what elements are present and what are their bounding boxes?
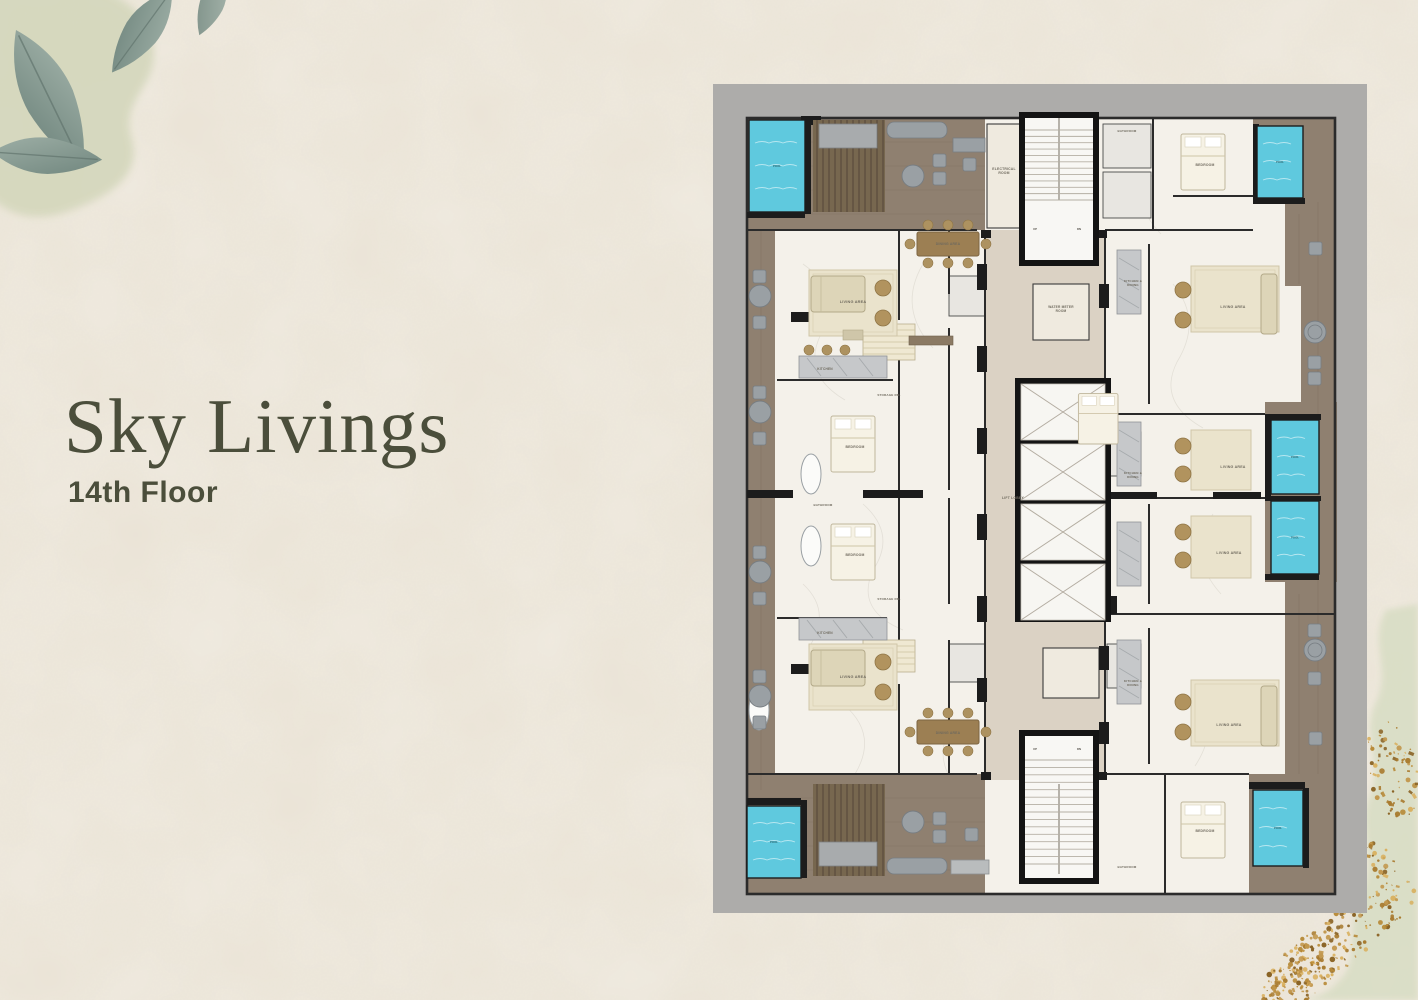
room-label: KITCHEN <box>817 631 833 635</box>
watercolor-leaves <box>0 0 320 360</box>
room-label: BATHROOM <box>1117 129 1136 133</box>
room-label: BEDROOM <box>845 553 864 557</box>
room-label: DINING AREA <box>936 731 961 735</box>
staircase-top <box>1019 112 1099 266</box>
room-label: BEDROOM <box>845 445 864 449</box>
room-label: LIVING AREA <box>1216 723 1241 727</box>
floor-subtitle: 14th Floor <box>68 476 449 510</box>
room-label: BATHROOM <box>813 503 832 507</box>
pool: POOL <box>1253 790 1303 866</box>
lift-shaft <box>1021 444 1105 500</box>
svg-text:POOL: POOL <box>770 840 778 844</box>
room-label: LIVING AREA <box>1216 551 1241 555</box>
room-label: BEDROOM <box>1195 163 1214 167</box>
floor-plan-image: POOLPOOLPOOLPOOLPOOLPOOL <box>713 84 1367 913</box>
pool: POOL <box>1257 126 1303 198</box>
brochure-page: Sky Livings 14th Floor <box>0 0 1418 1000</box>
page-title: Sky Livings <box>64 386 449 466</box>
room-label: DN <box>1077 747 1081 751</box>
room-label: KITCHEN <box>817 367 833 371</box>
room-label: STORAGE RM. <box>877 393 900 397</box>
room-label: BEDROOM <box>1195 829 1214 833</box>
room-label: UP <box>1033 747 1037 751</box>
pergola-top-left <box>813 120 885 212</box>
title-block: Sky Livings 14th Floor <box>64 386 449 510</box>
svg-text:POOL: POOL <box>1291 455 1299 459</box>
room-label: UP <box>1033 227 1037 231</box>
lift-shaft <box>1021 564 1105 620</box>
pool: POOL <box>747 806 801 878</box>
svg-text:POOL: POOL <box>1276 160 1284 164</box>
room-label: LIVING AREA <box>1220 305 1245 309</box>
room-label: DINING AREA <box>936 242 961 246</box>
leaf-icon <box>188 0 235 40</box>
room-label: DN <box>1077 227 1081 231</box>
room-label: LIVING AREA <box>840 675 867 679</box>
svg-text:POOL: POOL <box>1274 826 1282 830</box>
lift-shaft <box>1021 504 1105 560</box>
room-label: BATHROOM <box>1117 865 1136 869</box>
pool: POOL <box>1271 420 1319 494</box>
staircase-bottom <box>1019 730 1099 884</box>
pool: POOL <box>1271 501 1319 574</box>
svg-text:POOL: POOL <box>1291 536 1299 540</box>
room-label: LIFT LOBBY <box>1002 496 1025 500</box>
room-label: LIVING AREA <box>1220 465 1245 469</box>
room-label: STORAGE RM. <box>877 597 900 601</box>
svg-text:POOL: POOL <box>773 164 781 168</box>
room-label: LIVING AREA <box>840 300 867 304</box>
pergola-bottom-left <box>813 784 885 876</box>
pool: POOL <box>749 120 805 212</box>
